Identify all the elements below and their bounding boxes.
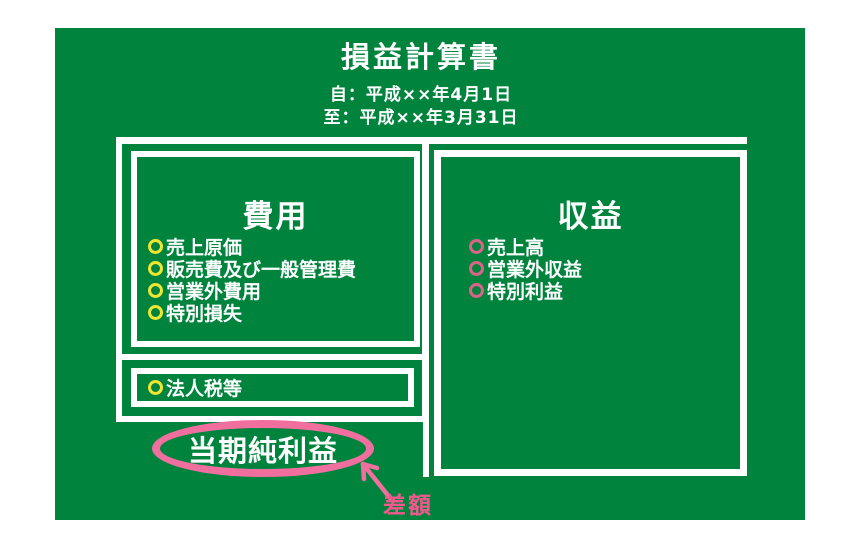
pink-circle-bullet-icon (469, 261, 484, 276)
net-income-highlight-ellipse: 当期純利益 (152, 420, 374, 477)
period-to: 至：平成××年3月31日 (95, 107, 747, 129)
revenues-item-list: 売上高 営業外収益 特別利益 (469, 235, 582, 301)
yellow-circle-bullet-icon (148, 239, 163, 254)
yellow-circle-bullet-icon (148, 380, 163, 395)
revenues-box: 収益 売上高 営業外収益 特別利益 (434, 150, 747, 476)
page: 損益計算書 自：平成××年4月1日 至：平成××年3月31日 費用 売上原価 販… (0, 0, 850, 550)
expenses-box: 費用 売上原価 販売費及び一般管理費 営業外費用 特別損失 (131, 151, 420, 347)
expenses-frame-divider-line (116, 354, 428, 360)
column-divider-line (423, 137, 429, 477)
yellow-circle-bullet-icon (148, 283, 163, 298)
expenses-item-list: 売上原価 販売費及び一般管理費 営業外費用 特別損失 (148, 235, 356, 323)
yellow-circle-bullet-icon (148, 261, 163, 276)
tax-item-label: 法人税等 (166, 374, 242, 401)
revenue-item: 特別利益 (469, 279, 582, 301)
pink-circle-bullet-icon (469, 283, 484, 298)
revenue-item-label: 特別利益 (487, 277, 563, 304)
expense-item-label: 特別損失 (166, 299, 242, 326)
period-from: 自：平成××年4月1日 (95, 84, 747, 106)
page-title: 損益計算書 (95, 41, 747, 73)
corporate-tax-box: 法人税等 (131, 368, 414, 407)
pink-circle-bullet-icon (469, 239, 484, 254)
tax-item: 法人税等 (148, 374, 242, 401)
net-income-label: 当期純利益 (188, 428, 338, 470)
expense-item: 特別損失 (148, 301, 356, 323)
income-statement-board: 損益計算書 自：平成××年4月1日 至：平成××年3月31日 費用 売上原価 販… (55, 28, 805, 520)
yellow-circle-bullet-icon (148, 305, 163, 320)
expenses-heading: 費用 (137, 191, 414, 236)
revenues-heading: 収益 (441, 191, 740, 236)
difference-label: 差額 (383, 486, 433, 520)
